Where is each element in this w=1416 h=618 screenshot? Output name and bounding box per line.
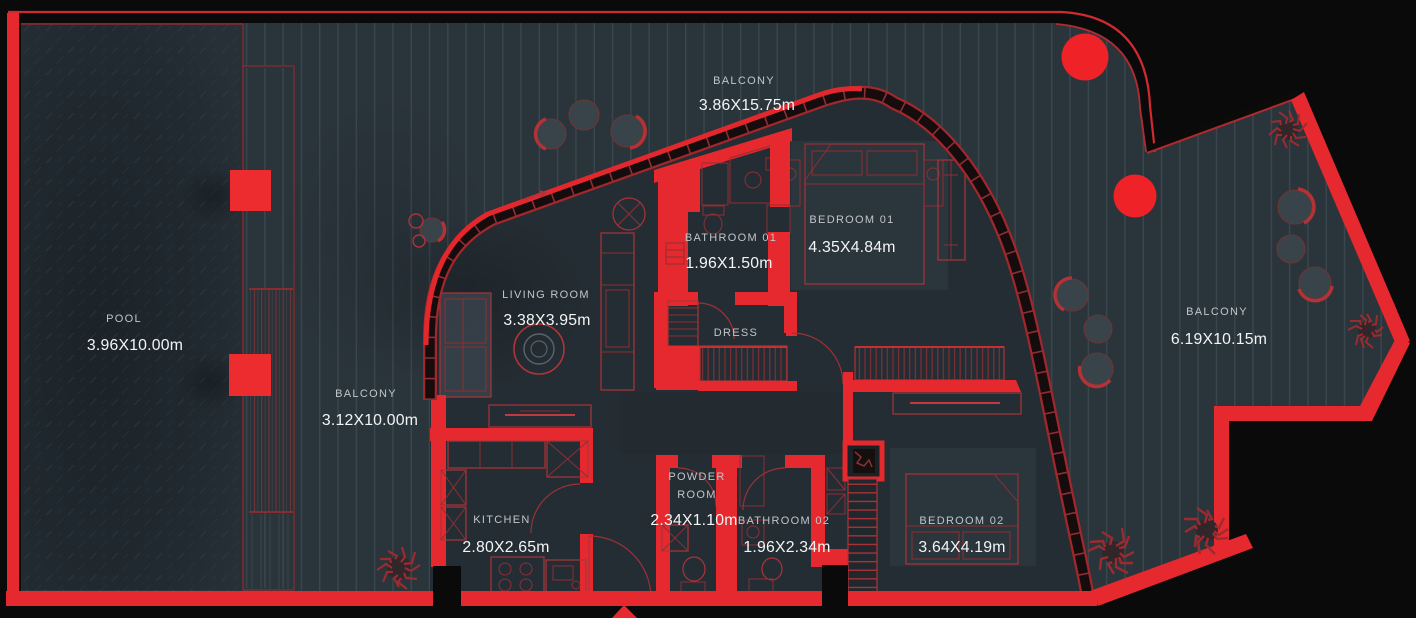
- svg-text:2.80X2.65m: 2.80X2.65m: [462, 539, 549, 556]
- svg-text:3.12X10.00m: 3.12X10.00m: [322, 412, 418, 429]
- svg-text:3.86X15.75m: 3.86X15.75m: [699, 97, 795, 114]
- svg-text:DRESS: DRESS: [714, 327, 758, 339]
- svg-text:POWDER: POWDER: [668, 471, 725, 483]
- svg-text:BATHROOM 02: BATHROOM 02: [738, 515, 830, 527]
- svg-text:BALCONY: BALCONY: [335, 388, 397, 400]
- svg-text:2.34X1.10m: 2.34X1.10m: [650, 512, 737, 529]
- svg-text:BALCONY: BALCONY: [1186, 306, 1248, 318]
- svg-text:1.96X1.50m: 1.96X1.50m: [685, 255, 772, 272]
- svg-text:6.19X10.15m: 6.19X10.15m: [1171, 331, 1267, 348]
- svg-text:BEDROOM 02: BEDROOM 02: [919, 515, 1004, 527]
- svg-text:BEDROOM 01: BEDROOM 01: [809, 214, 894, 226]
- svg-text:LIVING ROOM: LIVING ROOM: [502, 289, 590, 301]
- svg-text:KITCHEN: KITCHEN: [473, 514, 530, 526]
- svg-text:POOL: POOL: [106, 313, 142, 325]
- svg-text:4.35X4.84m: 4.35X4.84m: [808, 239, 895, 256]
- svg-text:3.96X10.00m: 3.96X10.00m: [87, 337, 183, 354]
- svg-text:ROOM: ROOM: [677, 489, 716, 501]
- svg-text:1.96X2.34m: 1.96X2.34m: [743, 539, 830, 556]
- svg-text:3.38X3.95m: 3.38X3.95m: [503, 312, 590, 329]
- svg-text:BATHROOM 01: BATHROOM 01: [685, 232, 777, 244]
- svg-text:3.64X4.19m: 3.64X4.19m: [918, 539, 1005, 556]
- svg-text:BALCONY: BALCONY: [713, 75, 775, 87]
